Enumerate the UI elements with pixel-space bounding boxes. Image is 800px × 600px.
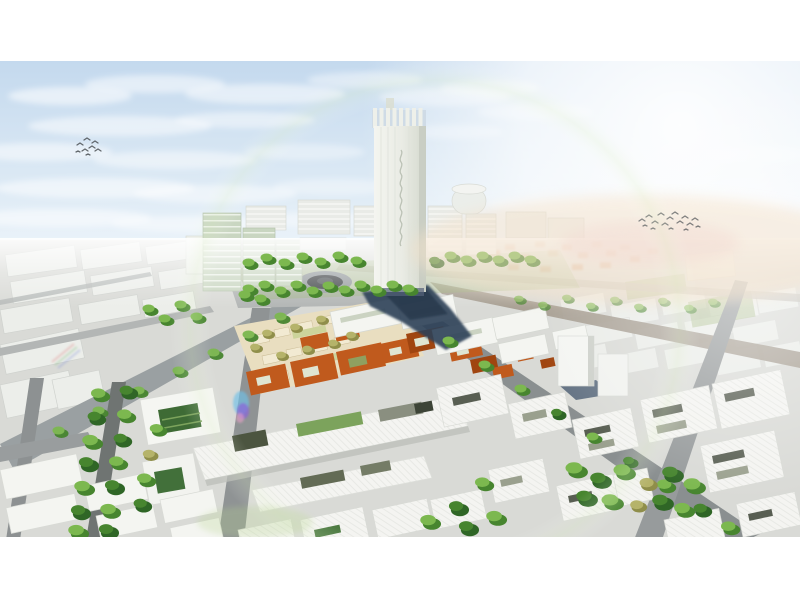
flare-pink-edge <box>236 413 244 423</box>
lens-flare-green-tint <box>197 506 313 538</box>
bottom-margin <box>0 537 800 600</box>
masterplan-rendering <box>0 0 800 600</box>
rendering-canvas <box>0 0 800 600</box>
lens-flare-ring <box>0 61 800 537</box>
top-margin <box>0 0 800 61</box>
